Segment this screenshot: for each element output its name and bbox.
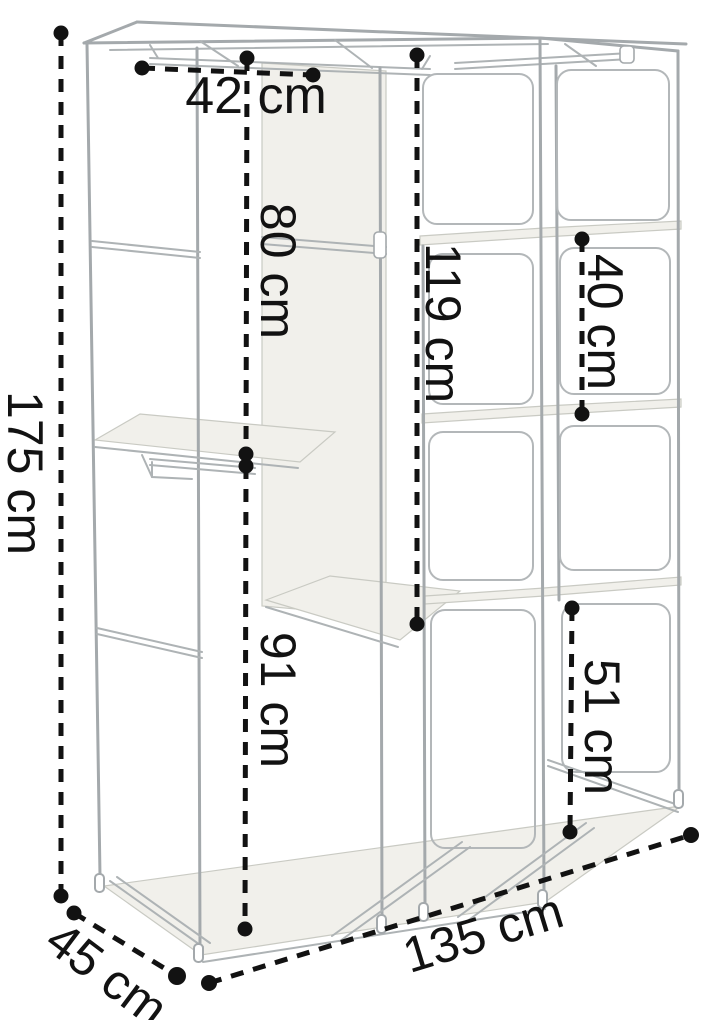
dim-label-upper-shelf-gap: 40 cm — [577, 254, 633, 390]
dim-label-middle-section-height: 119 cm — [415, 243, 471, 403]
dim-label-total-height: 175 cm — [0, 391, 53, 555]
dim-label-upper-left-height: 80 cm — [250, 203, 306, 339]
dim-label-lower-shelf-gap: 51 cm — [574, 659, 630, 795]
dim-label-left-section-width: 42 cm — [185, 67, 327, 125]
dim-label-lower-left-height: 91 cm — [250, 632, 306, 768]
wardrobe-drawing — [84, 22, 686, 962]
dim-line-lower-gap — [570, 608, 572, 832]
fabric-panel-middle-back — [262, 63, 386, 617]
fabric-shelf-right-3 — [425, 577, 681, 604]
diagram-canvas: 175 cm 42 cm 80 cm 91 cm 119 cm 40 cm 51… — [0, 0, 710, 1020]
cell-frames — [423, 70, 670, 848]
dim-line-lower-left — [245, 466, 246, 929]
product-dimension-diagram: 175 cm 42 cm 80 cm 91 cm 119 cm 40 cm 51… — [0, 0, 710, 1020]
